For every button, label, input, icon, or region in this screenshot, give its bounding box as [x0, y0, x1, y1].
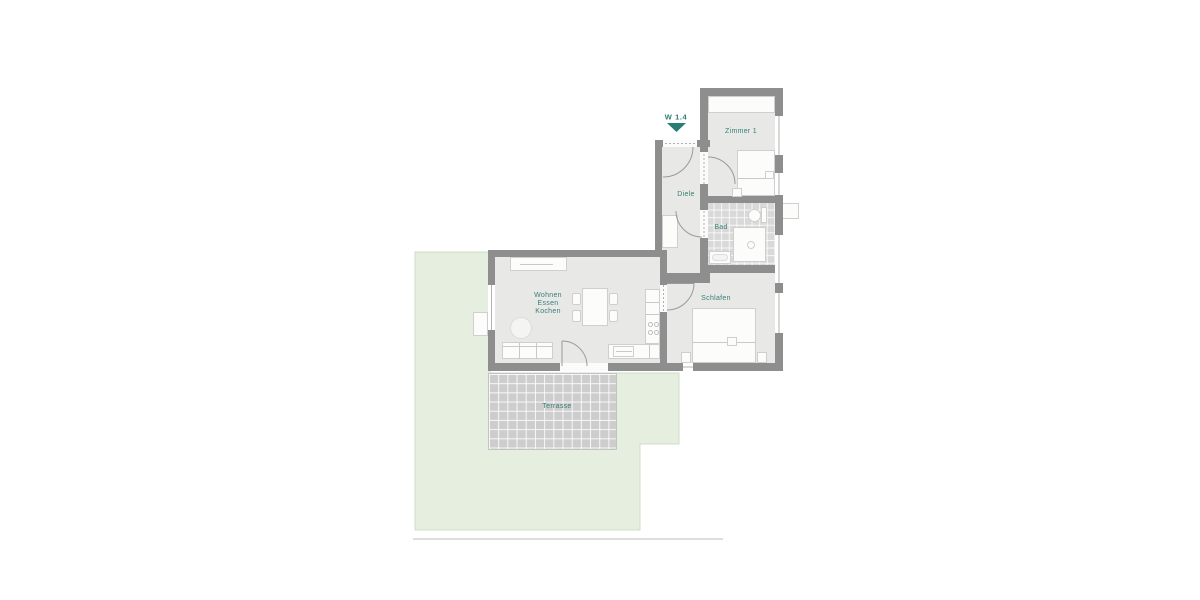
bed-zimmer1: [737, 150, 775, 196]
wall-kitchen-1: [660, 250, 667, 285]
round-table: [510, 317, 532, 339]
wall-west-2: [488, 330, 495, 363]
wall-south-1: [488, 363, 560, 371]
double-bed: [692, 308, 756, 363]
room-label-terrasse: Terrasse: [542, 403, 571, 411]
window-sill-west: [473, 312, 488, 336]
window-bad: [775, 235, 783, 283]
wall-south-3: [693, 363, 783, 371]
window-wohnen-west: [488, 285, 495, 330]
nightstand: [681, 352, 691, 363]
dining-chair: [572, 310, 581, 322]
door-opening-entry: [663, 140, 697, 147]
door-opening-terrace: [560, 363, 608, 371]
door-opening-zimmer1: [700, 152, 708, 184]
window-schlafen-east: [775, 293, 783, 333]
wall-zimmer1-west-1: [700, 96, 708, 152]
room-label-wohnen-line1: Wohnen: [534, 292, 562, 300]
kitchen-sink: [613, 346, 634, 357]
room-label-zimmer1: Zimmer 1: [725, 128, 757, 136]
hall-wardrobe: [662, 215, 678, 248]
bathroom-sink: [709, 251, 731, 264]
room-label-wohnen-line3: Kochen: [534, 308, 562, 316]
nightstand: [757, 352, 767, 363]
room-label-schlafen: Schlafen: [701, 295, 731, 303]
wall-east-2: [775, 155, 783, 173]
wall-east-4: [775, 283, 783, 293]
unit-label[interactable]: W 1.4: [665, 113, 688, 122]
wall-kitchen-2: [660, 312, 667, 363]
pillow: [765, 171, 774, 179]
window-zimmer1-2: [775, 173, 783, 195]
wall-west-diele: [655, 140, 662, 250]
door-opening-bad: [700, 210, 708, 238]
floor-plan: W 1.4 Zimmer 1 Diele Bad Schlafen Wohnen…: [0, 0, 1200, 600]
sideboard: [510, 257, 567, 271]
wall-south-2: [608, 363, 683, 371]
room-label-wohnen: Wohnen Essen Kochen: [534, 292, 562, 316]
wall-entry-left: [655, 140, 663, 147]
blanket-fold: [727, 337, 737, 346]
wall-bad-south: [700, 265, 775, 273]
wall-top-zimmer1: [700, 88, 783, 96]
sink-basin: [712, 254, 728, 261]
shower: [733, 227, 766, 262]
door-opening-schlafen: [660, 285, 667, 312]
dining-chair: [609, 310, 618, 322]
window-zimmer1-1: [775, 116, 783, 155]
wall-schlafen-north: [660, 273, 710, 283]
shower-drain: [747, 241, 755, 249]
window-sill-east: [782, 203, 799, 219]
wc-bowl: [748, 209, 761, 222]
wc-tank: [761, 207, 767, 223]
dining-chair: [572, 293, 581, 305]
kitchen-counter-tall: [645, 289, 660, 344]
room-label-bad: Bad: [714, 224, 727, 232]
wall-north-living: [488, 250, 662, 257]
room-label-wohnen-line2: Essen: [534, 300, 562, 308]
wardrobe-zimmer1: [708, 96, 775, 113]
room-label-diele: Diele: [677, 191, 694, 199]
wall-east-3: [775, 195, 783, 235]
dining-chair: [609, 293, 618, 305]
wall-bad-north: [700, 196, 775, 203]
window-schlafen-south: [683, 363, 693, 371]
dining-table: [582, 288, 608, 326]
wall-east-1: [775, 96, 783, 116]
terrace-paving: [488, 373, 617, 450]
stool: [732, 188, 742, 197]
sofa: [502, 342, 553, 359]
